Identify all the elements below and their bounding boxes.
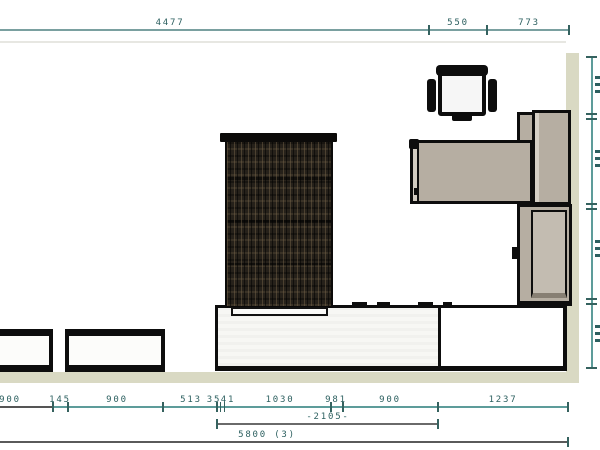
dim-bottom1-tick-8	[437, 402, 439, 412]
dim-right-textfrag-3-2	[595, 339, 600, 342]
dim-bottom1-tick-9	[567, 402, 569, 412]
dim-top-label-2: 773	[494, 18, 564, 28]
dim-top-label-1: 550	[423, 18, 493, 28]
dim-right-textfrag-1-0	[595, 150, 600, 153]
dim-bottom1-label-9: 1237	[468, 395, 538, 405]
dim-right-tick-3	[586, 203, 597, 205]
dim-right-textfrag-0-1	[595, 83, 600, 86]
dim-right-textfrag-2-0	[595, 240, 600, 243]
dim-right-textfrag-0-2	[595, 90, 600, 93]
dim-right-tick-6	[586, 303, 597, 305]
dim-right-textfrag-3-1	[595, 332, 600, 335]
dim-right-tick-0	[586, 56, 597, 58]
dim-bottom1-label-8: 900	[355, 395, 425, 405]
dim-bottom2-tick-0	[216, 419, 218, 429]
dim-right-line	[591, 57, 593, 369]
dim-right-textfrag-2-2	[595, 254, 600, 257]
dim-right-textfrag-0-0	[595, 76, 600, 79]
dim-bottom3-line	[0, 441, 569, 443]
dim-right-textfrag-1-1	[595, 157, 600, 160]
dim-bottom2-label-0: -2105-	[293, 412, 363, 422]
dim-top-tick-2	[568, 25, 570, 35]
dim-right-textfrag-1-2	[595, 164, 600, 167]
dim-right-tick-4	[586, 208, 597, 210]
dim-bottom1-label-2: 900	[82, 395, 152, 405]
dim-bottom1-seg-0	[0, 406, 53, 408]
dim-right-textfrag-3-0	[595, 325, 600, 328]
dim-right-textfrag-2-1	[595, 247, 600, 250]
dimension-layer: 4477550773900145900513354110309819001237…	[0, 0, 600, 450]
dim-bottom1-line	[0, 406, 569, 408]
dim-bottom3-label-0: 5800 (3)	[232, 430, 302, 440]
drawing-canvas[interactable]: 4477550773900145900513354110309819001237…	[0, 0, 600, 450]
dim-right-tick-2	[586, 118, 597, 120]
dim-right-tick-7	[586, 367, 597, 369]
dim-right-tick-1	[586, 113, 597, 115]
dim-top-label-0: 4477	[135, 18, 205, 28]
dim-top-line	[0, 29, 570, 31]
dim-right-tick-5	[586, 298, 597, 300]
dim-bottom3-tick-0	[567, 437, 569, 447]
dim-bottom2-tick-1	[437, 419, 439, 429]
dim-bottom2-line	[217, 423, 438, 425]
